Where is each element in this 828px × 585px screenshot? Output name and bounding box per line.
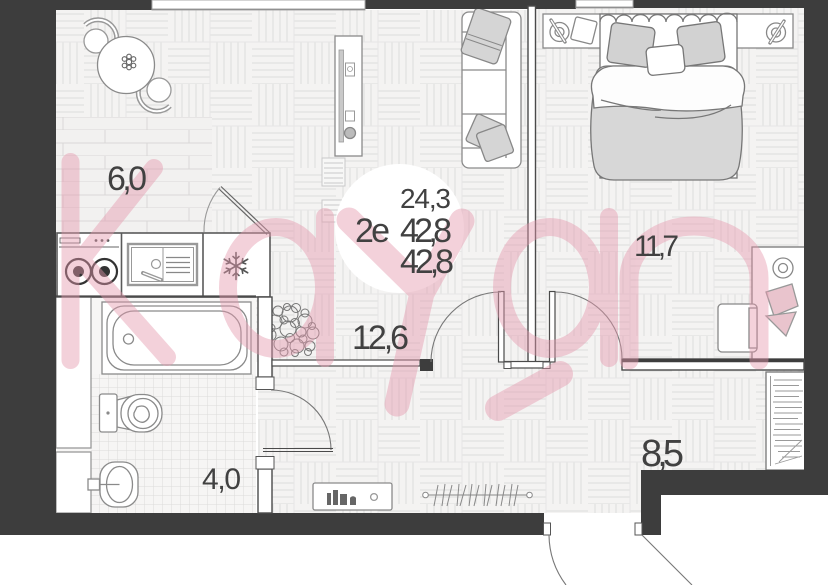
svg-text:4,0: 4,0 [202,463,241,496]
svg-text:24,3: 24,3 [400,183,451,214]
svg-text:8,5: 8,5 [641,433,684,475]
svg-text:42,8: 42,8 [400,243,454,281]
svg-text:11,7: 11,7 [634,230,679,263]
svg-text:6,0: 6,0 [107,160,147,198]
svg-text:12,6: 12,6 [352,319,409,357]
svg-text:2е: 2е [355,212,390,250]
